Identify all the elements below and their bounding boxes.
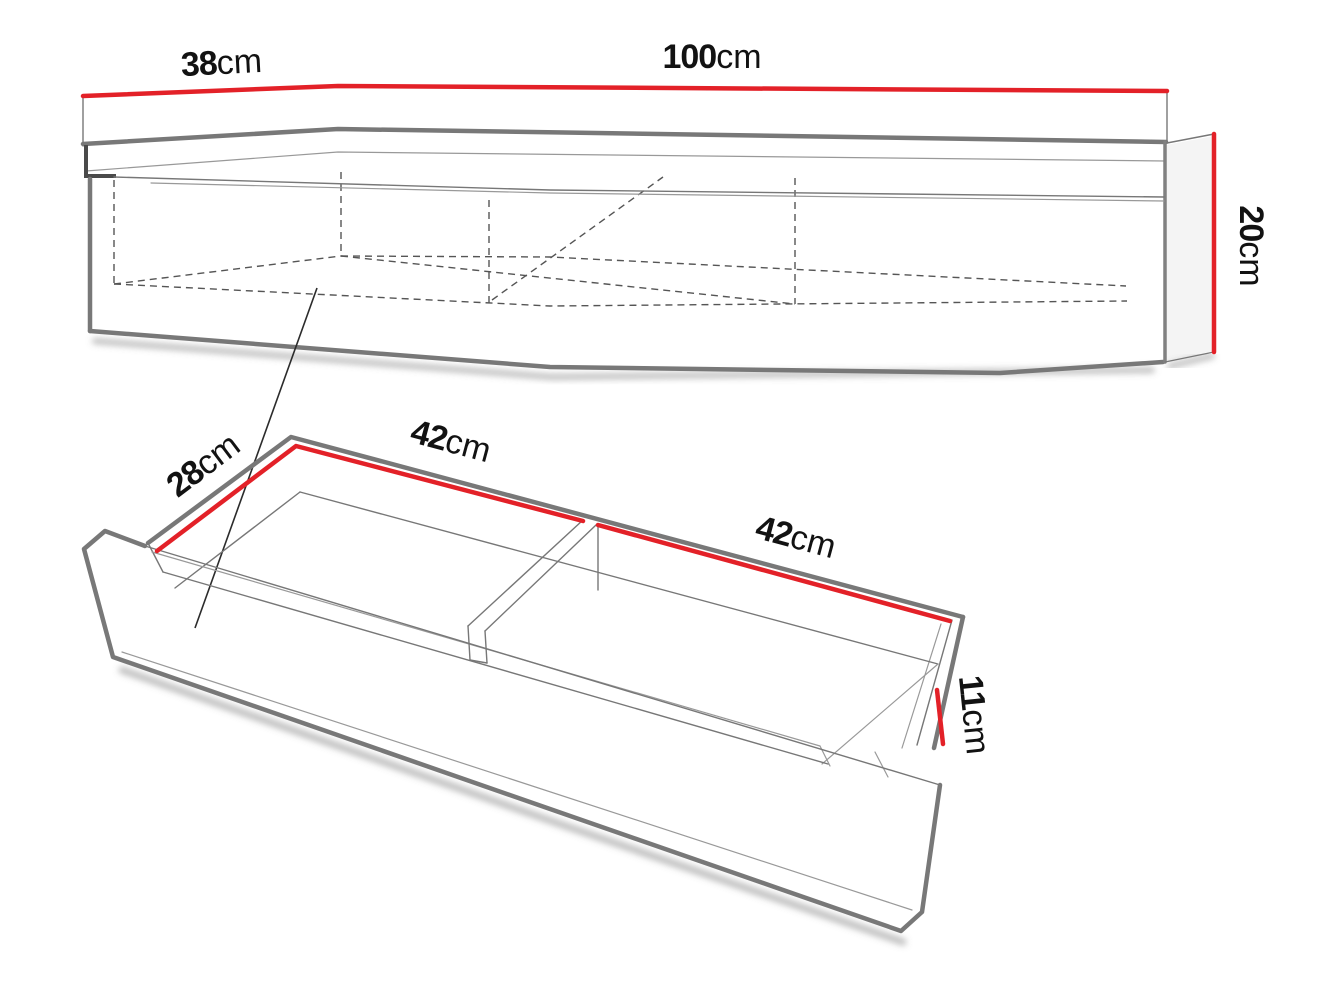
dimension-label-drawer-left-compartment: 42cm xyxy=(407,413,495,471)
drawer-view: 28cm 42cm 42cm 11cm xyxy=(84,413,997,942)
dimension-label-console-height: 20cm xyxy=(1232,205,1270,286)
dimension-diagram: 38cm 100cm 20cm xyxy=(0,0,1325,993)
dimension-label-drawer-right-compartment: 42cm xyxy=(752,509,840,567)
console-edges xyxy=(83,92,1214,373)
diagram-canvas: 38cm 100cm 20cm xyxy=(0,0,1325,993)
dimension-label-console-width: 100cm xyxy=(662,38,761,76)
dimension-label-drawer-height: 11cm xyxy=(951,673,997,756)
dimension-line-width-depth xyxy=(83,86,1167,96)
drawer-bottom-shadow xyxy=(122,670,903,942)
drawer-edges xyxy=(84,437,963,931)
console-view: 38cm 100cm 20cm xyxy=(83,38,1270,377)
dimension-label-console-depth: 38cm xyxy=(180,42,263,84)
console-hidden-lines xyxy=(114,172,1127,306)
side-panel-face xyxy=(1166,136,1214,361)
